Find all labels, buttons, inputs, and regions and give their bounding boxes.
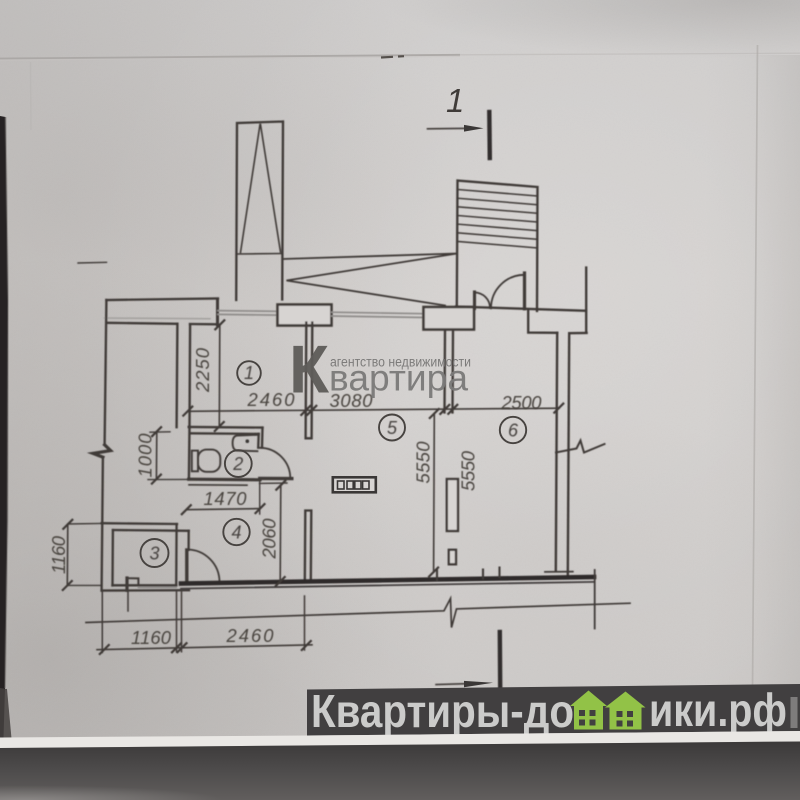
svg-text:6: 6 [508, 421, 519, 441]
svg-text:1470: 1470 [204, 488, 248, 509]
svg-text:3: 3 [149, 544, 159, 564]
svg-text:вартира: вартира [329, 358, 468, 399]
svg-text:1: 1 [244, 363, 254, 383]
svg-text:2: 2 [232, 454, 243, 474]
svg-text:5: 5 [387, 418, 398, 438]
svg-text:2060: 2060 [258, 518, 279, 560]
svg-text:2500: 2500 [501, 392, 543, 413]
svg-text:5550: 5550 [412, 441, 433, 484]
svg-text:ики.рф: ики.рф [649, 684, 787, 736]
svg-text:2250: 2250 [192, 347, 213, 393]
svg-text:1160: 1160 [48, 535, 69, 574]
svg-text:5550: 5550 [457, 450, 478, 491]
svg-text:4: 4 [231, 523, 241, 543]
svg-text:1: 1 [446, 82, 464, 119]
svg-text:Квартиры-до: Квартиры-до [311, 685, 574, 737]
svg-text:1000: 1000 [134, 433, 155, 478]
svg-text:1160: 1160 [131, 627, 172, 648]
svg-text:К: К [289, 332, 329, 408]
